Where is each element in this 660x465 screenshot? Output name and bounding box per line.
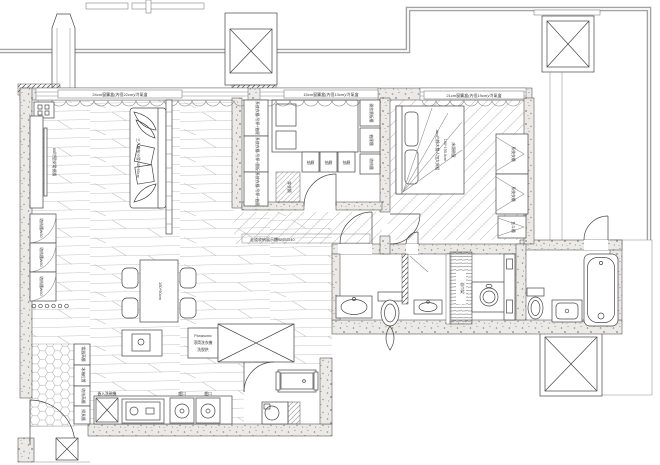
wall-utility-right: [320, 358, 332, 424]
island: [122, 330, 162, 356]
washing-machine: [262, 402, 300, 424]
building-edge-lines: [550, 72, 562, 240]
closet-cabinet-label: 系統衣櫃/吊桿+層板: [255, 137, 260, 171]
shower-door-gap: [406, 244, 418, 254]
wardrobes: 系統衣櫃 系統衣櫃 五斗櫃: [496, 134, 528, 238]
intercom-panel: [34, 102, 54, 118]
sofa-label: 三人座布沙發240*95cm: [136, 138, 141, 178]
wall-bedroom-west-stub: [380, 236, 390, 254]
side-cabinet-label: 收納櫃W60: [39, 218, 44, 237]
bed-label-1: Abs白橡木雙人加大床組: [435, 130, 440, 171]
bathA-door-gap: [338, 244, 372, 254]
curtain-note-right: 21cm窗簾盒(內徑19cm)/冷氣盒: [446, 92, 501, 98]
shower-room: [410, 256, 442, 314]
dining-chair: [122, 298, 138, 318]
shaft-top-middle: [225, 13, 277, 94]
dresser-label: 五斗櫃: [511, 221, 516, 233]
dining-chair: [180, 268, 196, 288]
vanity-D: [552, 300, 582, 322]
powder-area: [472, 254, 515, 320]
bathD-door-arc: [584, 216, 608, 240]
bed-label-2: 190*195.5cm: [443, 139, 447, 161]
bed: Abs白橡木雙人加大床組 190*195.5cm 床頭朝窗: [396, 106, 464, 194]
hob-label: 爐口: [204, 391, 212, 396]
bathroom-D: [527, 216, 618, 326]
wall-bedroom-west: [380, 98, 390, 212]
curtain-note-mid: 15cm窗簾盒(內徑13cm)/冷氣盒: [303, 91, 358, 97]
wall-bottom-kitchen: [88, 424, 332, 436]
powder-counter: [472, 282, 508, 312]
side-cabinet-label: 收納櫃W60: [39, 276, 44, 295]
utility-bench: [276, 370, 318, 392]
closet-right-label: 開放層板櫃: [369, 104, 374, 123]
bathD-door-gap: [584, 240, 608, 250]
linen-label: 浴巾架: [460, 282, 465, 294]
kitchen-cabinet-label: 冰箱位置: [81, 367, 86, 382]
wardrobe-label: 系統衣櫃: [511, 186, 516, 201]
room-divider-screen: [166, 100, 172, 234]
kitchen-counter: 嵌入洗碗機 爐口 爐口: [94, 391, 232, 424]
closet-right-label: 收納櫃: [369, 158, 374, 170]
tv-label: 65吋壁掛電視牆: [52, 148, 58, 176]
dishwasher-label: 嵌入洗碗機: [98, 391, 117, 396]
bed-label-3: 床頭朝窗: [451, 142, 456, 157]
drawer-label: 抽屜: [343, 160, 351, 165]
wall-closet-south-b: [336, 202, 382, 210]
tall-cabinet: [504, 254, 515, 320]
exterior-duct: [52, 14, 75, 90]
bathtub: [584, 254, 618, 326]
side-cabinet-label: 收納櫃W60: [39, 247, 44, 266]
closet-right-label: 抽屜櫃: [369, 134, 374, 146]
wall-left-stub: [18, 438, 34, 462]
corridor-note: 走道收納展示櫃W40/D40: [250, 236, 295, 242]
roof-edge-bars: [86, 0, 204, 13]
drawer-label: 抽屜: [307, 160, 315, 165]
kitchen-cabinet-label: 電器高櫃: [81, 346, 86, 361]
dining-chair: [180, 298, 196, 318]
kitchen-sink: [122, 399, 164, 423]
entry-hex-tile: [30, 344, 74, 426]
linen-cabinet: 浴巾架: [450, 252, 472, 324]
dining-chair: [122, 268, 138, 288]
mirror-label: 穿衣鏡: [287, 181, 292, 193]
tv-cabinet: [30, 116, 43, 208]
drawer-label: 抽屜: [325, 160, 333, 165]
curtain-note-left: 24cm窗簾盒(內徑22cm)/冷氣盒: [92, 91, 147, 97]
wardrobe-label: 系統衣櫃: [511, 146, 516, 161]
vanity-shower: [414, 300, 442, 314]
kitchen-cabinet-label: 掃具櫃: [81, 409, 86, 421]
laundry-line: Panasonic: [194, 334, 212, 338]
laundry-line: 洗脫烘: [197, 347, 209, 352]
wall-closet-west: [232, 98, 242, 208]
kitchen-cabinet-label: 收納高櫃: [81, 388, 86, 403]
toilet-D: [527, 288, 544, 319]
wall-powder-bathD: [516, 244, 526, 320]
tall-cabinet-column: 電器高櫃 冰箱位置 收納高櫃 掃具櫃: [74, 344, 90, 424]
closet-cabinet-label: 系統衣櫃/吊桿+抽屜: [255, 101, 260, 135]
shaft-top-right: [534, 10, 600, 72]
hob-label: 爐口: [178, 391, 186, 396]
laundry-box: Panasonic 滾筒洗衣機 洗脫烘: [188, 328, 218, 358]
entry-step-shaft: [56, 438, 78, 460]
dining-table-label: 150*90cm: [158, 282, 163, 301]
floor-plan-drawing: 24cm窗簾盒(內徑22cm)/冷氣盒 15cm窗簾盒(內徑13cm)/冷氣盒 …: [0, 0, 660, 465]
closet-cabinet-label: 系統衣櫃/吊桿+抽屜: [255, 172, 260, 206]
side-cabinets: 收納櫃W60 收納櫃W60 收納櫃W60: [30, 214, 56, 301]
shaft-bottom-right: [540, 332, 602, 396]
column-shaft-kitchen: [218, 324, 294, 362]
tv-panel: [44, 128, 47, 196]
laundry-line: 滾筒洗衣機: [194, 340, 213, 345]
wall-bathA-shower: [402, 254, 408, 304]
floor-plan: 24cm窗簾盒(內徑22cm)/冷氣盒 15cm窗簾盒(內徑13cm)/冷氣盒 …: [0, 0, 660, 465]
sofa: 三人座布沙發240*95cm: [130, 108, 166, 208]
